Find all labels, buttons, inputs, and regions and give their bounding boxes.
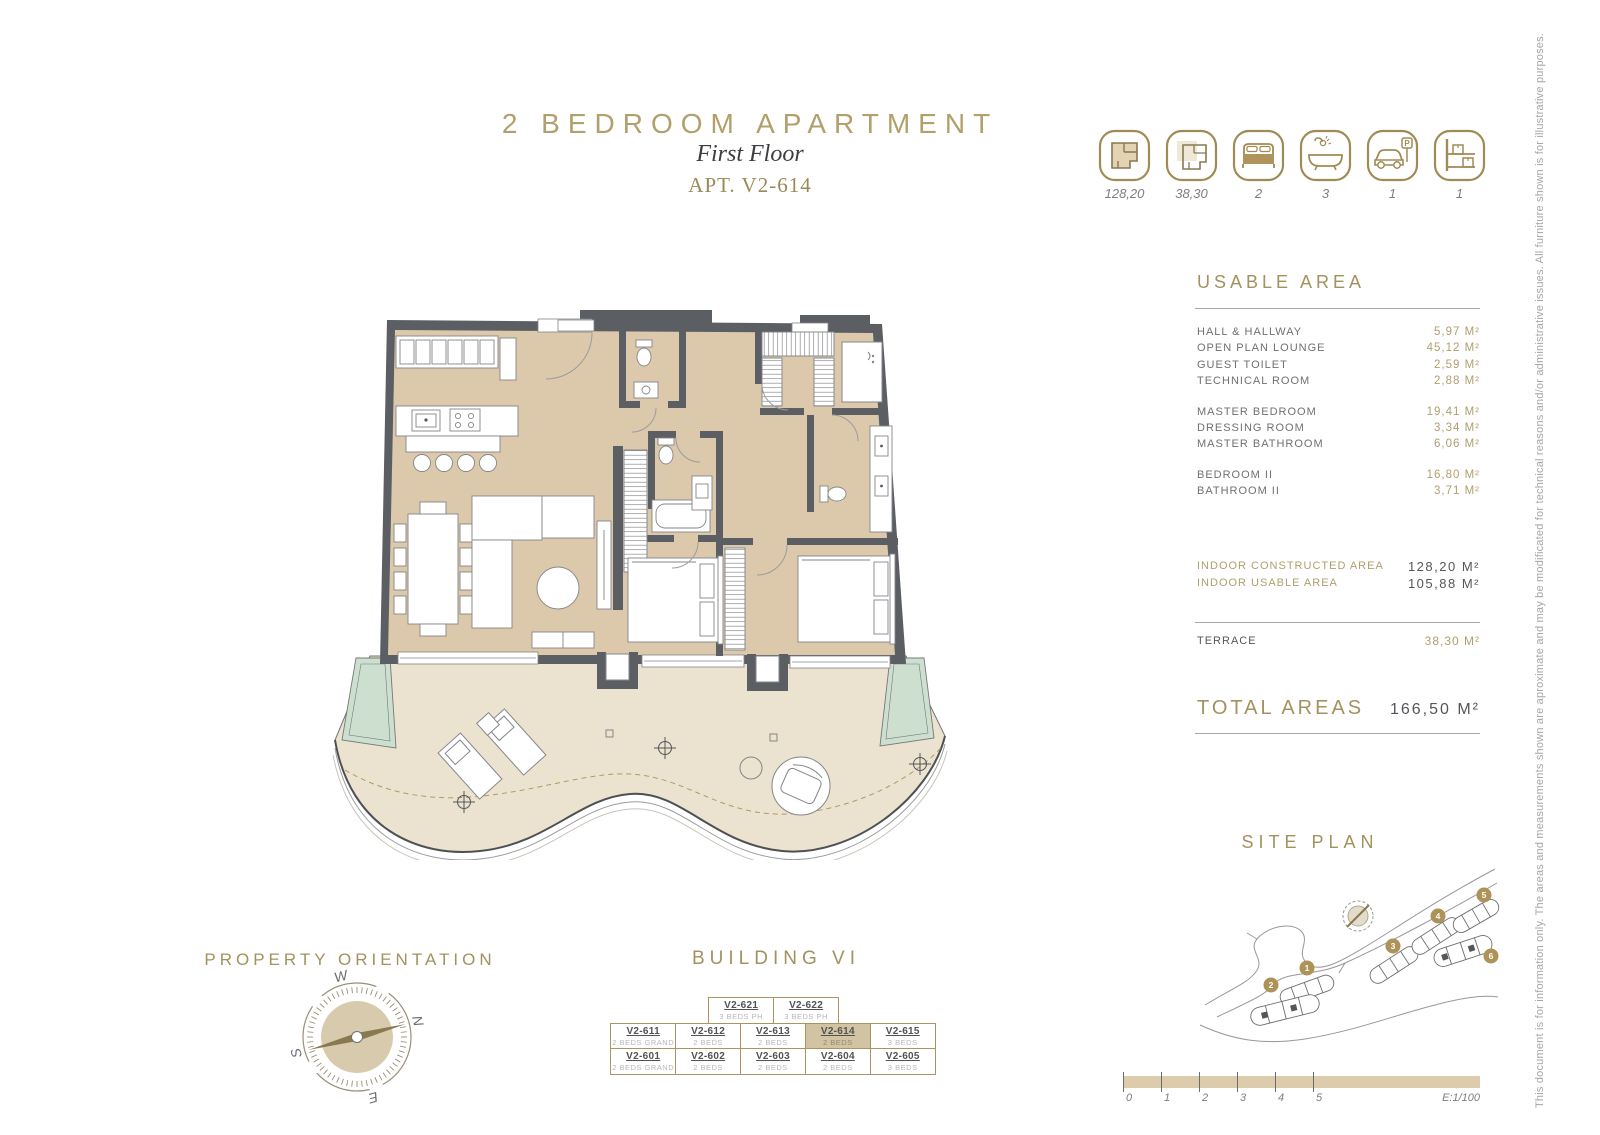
unit-code: V2-602 [676,1051,740,1062]
scale-number: 5 [1316,1092,1322,1104]
row-label: GUEST TOILET [1197,357,1288,373]
unit-code: V2-614 [806,1026,870,1037]
terrace-area-icon [1164,128,1219,183]
unit-code: V2-603 [741,1051,805,1062]
coffee-table [537,567,579,609]
terrace-light [606,730,613,737]
scale-ratio: E:1/100 [1442,1092,1480,1104]
table-row: OPEN PLAN LOUNGE45,12 M² [1197,340,1480,356]
site-buildings [1249,897,1500,1028]
unit-cell[interactable]: V2-603 2 BEDS [740,1048,806,1075]
summary-bathrooms: 3 [1298,128,1353,201]
marker-4: 4 [1436,911,1441,921]
row-value: 45,12 M² [1427,340,1480,356]
table-row: BATHROOM II3,71 M² [1197,483,1480,499]
row-value: 2,88 M² [1434,373,1480,389]
technical-room [842,342,882,402]
summary-constructed-area: 128,20 [1097,128,1152,201]
scale-tick [1313,1072,1314,1092]
table-row: INDOOR USABLE AREA105,88 M² [1197,575,1480,592]
compass: N E S W [282,962,432,1112]
stool [458,455,475,472]
row-value: 19,41 M² [1427,404,1480,420]
unit-cell[interactable]: V2-622 3 BEDS PH [773,997,839,1024]
constructed-area-value: 128,20 [1097,186,1152,201]
row-label: HALL & HALLWAY [1197,324,1302,340]
unit-cell[interactable]: V2-621 3 BEDS PH [708,997,774,1024]
unit-cell[interactable]: V2-611 2 BEDS GRAND [610,1023,676,1050]
unit-type: 2 BEDS [741,1063,805,1072]
unit-cell[interactable]: V2-602 2 BEDS [675,1048,741,1075]
unit-code: V2-612 [676,1026,740,1037]
unit-code: V2-622 [774,1000,838,1011]
bay-window [747,654,788,691]
scale-tick [1275,1072,1276,1092]
compass-s: S [287,1046,305,1060]
bath-icon [1298,128,1353,183]
hob [450,409,480,431]
unit-cell[interactable]: V2-613 2 BEDS [740,1023,806,1050]
bathrooms-value: 3 [1298,186,1353,201]
unit-type: 2 BEDS [676,1063,740,1072]
unit-code: V2-611 [611,1026,675,1037]
bedroom2-bed [628,556,723,644]
row-label: DRESSING ROOM [1197,420,1305,436]
row-value: 5,97 M² [1434,324,1480,340]
site-compass [1343,901,1373,931]
unit-code: V2-621 [709,1000,773,1011]
row-label: BATHROOM II [1197,483,1280,499]
divider [1195,733,1480,734]
row-value: 105,88 M² [1408,575,1480,592]
unit-type: 2 BEDS [806,1038,870,1047]
stool [414,455,431,472]
marker-6: 6 [1489,951,1494,961]
unit-cell[interactable]: V2-605 3 BEDS [870,1048,936,1075]
row-value: 3,34 M² [1434,420,1480,436]
parking-icon: P [1365,128,1420,183]
bed-icon [1231,128,1286,183]
unit-cell[interactable]: V2-604 2 BEDS [805,1048,871,1075]
unit-code: V2-604 [806,1051,870,1062]
total-value: 166,50 M² [1390,701,1480,719]
marker-2: 2 [1269,980,1274,990]
building-table: V2-621 3 BEDS PH V2-622 3 BEDS PH V2-611… [610,997,942,1075]
terrace-row: TERRACE38,30 M² [1197,633,1480,649]
table-row: INDOOR CONSTRUCTED AREA128,20 M² [1197,558,1480,575]
compass-e: E [366,1089,380,1107]
summary-storage: 1 [1432,128,1487,201]
unit-type: 3 BEDS [871,1038,935,1047]
disclaimer-text: This document is for information only. T… [1534,28,1550,1108]
row-label: BEDROOM II [1197,467,1273,483]
scale-tick [1199,1072,1200,1092]
svg-text:P: P [1404,139,1410,148]
master-bed [798,554,895,644]
floor-plan [330,300,950,860]
row-value: 38,30 M² [1425,633,1480,649]
unit-cell[interactable]: V2-612 2 BEDS [675,1023,741,1050]
unit-type: 2 BEDS [806,1063,870,1072]
unit-cell-current[interactable]: V2-614 2 BEDS [805,1023,871,1050]
table-row: MASTER BATHROOM6,06 M² [1197,436,1480,452]
constructed-area-icon [1097,128,1152,183]
row-label: MASTER BEDROOM [1197,404,1317,420]
row-value: 16,80 M² [1427,467,1480,483]
terrace [333,656,947,860]
bedrooms-value: 2 [1231,186,1286,201]
site-plan-map: 1 2 3 4 5 6 [1195,855,1500,1050]
planter [880,658,934,746]
row-label: INDOOR CONSTRUCTED AREA [1197,558,1384,575]
terrace-area-value: 38,30 [1164,186,1219,201]
divider [1195,308,1480,309]
scale-number: 2 [1202,1092,1208,1104]
table-row: MASTER BEDROOM19,41 M² [1197,404,1480,420]
terrace-light [770,734,777,741]
row-value: 6,06 M² [1434,436,1480,452]
unit-type: 2 BEDS GRAND [611,1063,675,1072]
storage-value: 1 [1432,186,1487,201]
scale-tick [1161,1072,1162,1092]
compass-w: W [332,966,351,985]
row-label: TERRACE [1197,633,1257,649]
storage-icon [1432,128,1487,183]
scale-number: 1 [1164,1092,1170,1104]
bay-window [597,652,638,689]
unit-type: 3 BEDS PH [774,1012,838,1021]
scale-number: 3 [1240,1092,1246,1104]
summary-icons: 128,20 38,30 2 [1097,128,1487,201]
scale-tick [1123,1072,1124,1092]
stool [436,455,453,472]
stool [480,455,497,472]
summary-bedrooms: 2 [1231,128,1286,201]
unit-code: V2-615 [871,1026,935,1037]
parking-value: 1 [1365,186,1420,201]
unit-type: 2 BEDS [741,1038,805,1047]
unit-type: 3 BEDS [871,1063,935,1072]
table-row: DRESSING ROOM3,34 M² [1197,420,1480,436]
row-label: TECHNICAL ROOM [1197,373,1310,389]
total-areas: TOTAL AREAS 166,50 M² [1197,697,1480,720]
usable-area-table: HALL & HALLWAY5,97 M² OPEN PLAN LOUNGE45… [1197,324,1480,500]
unit-code: V2-601 [611,1051,675,1062]
row-value: 2,59 M² [1434,357,1480,373]
planter [342,658,396,748]
summary-terrace-area: 38,30 [1164,128,1219,201]
unit-code: V2-605 [871,1051,935,1062]
row-label: OPEN PLAN LOUNGE [1197,340,1325,356]
divider [1195,622,1480,623]
site-plan-heading: SITE PLAN [1195,832,1425,853]
row-value: 3,71 M² [1434,483,1480,499]
row-value: 128,20 M² [1408,558,1480,575]
marker-5: 5 [1482,890,1487,900]
unit-type: 2 BEDS GRAND [611,1038,675,1047]
row-label: INDOOR USABLE AREA [1197,575,1338,592]
compass-n: N [409,1014,427,1029]
indoor-areas: INDOOR CONSTRUCTED AREA128,20 M² INDOOR … [1197,558,1480,592]
scale-number: 4 [1278,1092,1284,1104]
scale-bar: 0 1 2 3 4 5 E:1/100 [1123,1072,1480,1104]
marker-3: 3 [1391,941,1396,951]
usable-area-heading: USABLE AREA [1197,272,1365,293]
table-row: HALL & HALLWAY5,97 M² [1197,324,1480,340]
table-row: TECHNICAL ROOM2,88 M² [1197,373,1480,389]
scale-number: 0 [1126,1092,1132,1104]
total-label: TOTAL AREAS [1197,697,1364,720]
unit-cell[interactable]: V2-615 3 BEDS [870,1023,936,1050]
summary-parking: P 1 [1365,128,1420,201]
scale-bar-strip [1123,1076,1480,1088]
table-row: GUEST TOILET2,59 M² [1197,357,1480,373]
unit-code: V2-613 [741,1026,805,1037]
building-heading: BUILDING VI [610,948,942,970]
table-row: BEDROOM II16,80 M² [1197,467,1480,483]
unit-cell[interactable]: V2-601 2 BEDS GRAND [610,1048,676,1075]
unit-type: 2 BEDS [676,1038,740,1047]
row-label: MASTER BATHROOM [1197,436,1324,452]
marker-1: 1 [1305,963,1310,973]
unit-type: 3 BEDS PH [709,1012,773,1021]
scale-tick [1237,1072,1238,1092]
